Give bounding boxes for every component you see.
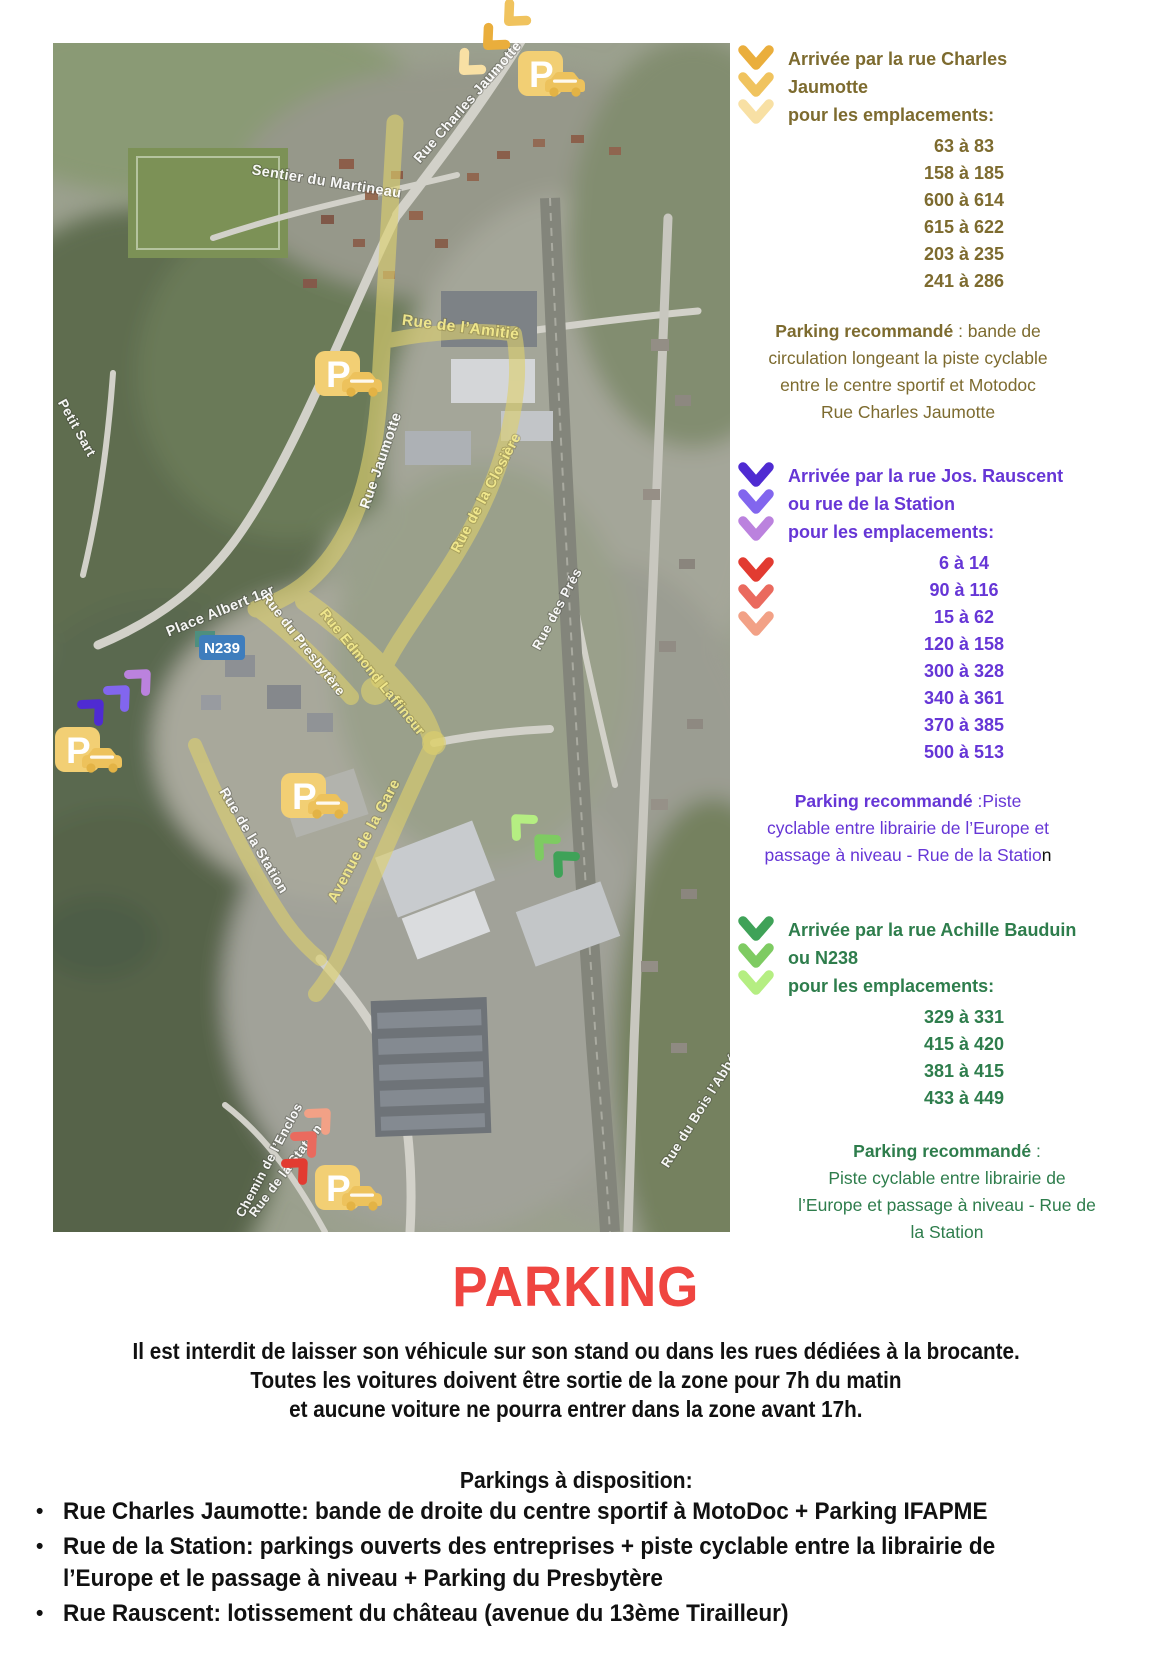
chevron-down-icon — [743, 975, 769, 990]
stand-range: 15 à 62 — [788, 604, 1140, 631]
chevron-down-icon — [743, 521, 769, 536]
route-block-rauscent-station: Arrivée par la rue Jos. Rauscent ou rue … — [736, 462, 1140, 766]
stand-range: 600 à 614 — [788, 187, 1140, 214]
parking-note-line: Rue Charles Jaumotte — [740, 399, 1076, 426]
stand-range: 158 à 185 — [788, 160, 1140, 187]
arrival-heading-line: pour les emplacements: — [788, 972, 1140, 1000]
parking-note-line: l’Europe et passage à niveau - Rue de — [782, 1192, 1112, 1219]
list-item: • Rue Rauscent: lotissement du château (… — [36, 1598, 1140, 1630]
stand-range: 381 à 415 — [788, 1058, 1140, 1085]
parking-note-label: Parking recommandé — [853, 1141, 1031, 1161]
parking-note-line: entre le centre sportif et Motodoc — [740, 372, 1076, 399]
chevron-down-icon — [743, 616, 769, 631]
arrival-heading-line: Arrivée par la rue Jos. Rauscent — [788, 462, 1140, 490]
stand-ranges: 329 à 331 415 à 420 381 à 415 433 à 449 — [788, 1004, 1140, 1112]
stand-range: 615 à 622 — [788, 214, 1140, 241]
chevron-down-icon — [743, 467, 769, 482]
stand-range: 203 à 235 — [788, 241, 1140, 268]
black-letter: n — [1042, 845, 1052, 865]
list-item-line: l’Europe et le passage à niveau + Parkin… — [63, 1563, 1055, 1595]
arrival-heading-line: Arrivée par la rue Charles — [788, 45, 1140, 73]
route-block-text: Arrivée par la rue Charles Jaumotte pour… — [788, 45, 1140, 295]
parking-note-label: Parking recommandé — [775, 321, 953, 341]
chevron-down-icon — [743, 589, 769, 604]
chevron-stack — [736, 45, 788, 295]
page-title: PARKING — [0, 1259, 1152, 1316]
chevron-stack — [736, 462, 788, 766]
route-block-text: Arrivée par la rue Achille Bauduin ou N2… — [788, 916, 1140, 1112]
aerial-map: P — [53, 43, 730, 1232]
chevron-down-icon — [743, 50, 769, 65]
arrival-heading-line: ou rue de la Station — [788, 490, 1140, 518]
chevron-stack — [736, 916, 788, 1112]
svg-text:N239: N239 — [204, 640, 240, 657]
chevron-down-icon — [743, 104, 769, 119]
parking-note-line: Piste cyclable entre librairie de — [782, 1165, 1112, 1192]
bullet-icon: • — [36, 1496, 63, 1528]
rules-text: Il est interdit de laisser son véhicule … — [0, 1337, 1152, 1424]
parkings-subtitle: Parkings à disposition: — [0, 1467, 1152, 1494]
parking-note-yellow: Parking recommandé : bande de circulatio… — [740, 318, 1076, 426]
arrival-heading-line: pour les emplacements: — [788, 101, 1140, 129]
parking-note-green: Parking recommandé : Piste cyclable entr… — [782, 1138, 1112, 1246]
stand-ranges: 63 à 83 158 à 185 600 à 614 615 à 622 20… — [788, 133, 1140, 295]
rules-line: Il est interdit de laisser son véhicule … — [0, 1337, 1152, 1366]
road-sign-n239: N239 — [195, 631, 245, 660]
arrival-heading-line: Arrivée par la rue Achille Bauduin — [788, 916, 1140, 944]
list-item-line: Rue Charles Jaumotte: bande de droite du… — [63, 1496, 1047, 1528]
chevron-icon — [500, 4, 526, 30]
list-item-line: Rue de la Station: parkings ouverts des … — [63, 1531, 1055, 1563]
stand-range: 63 à 83 — [788, 133, 1140, 160]
stand-range: 415 à 420 — [788, 1031, 1140, 1058]
stand-range: 300 à 328 — [788, 658, 1140, 685]
stand-range: 120 à 158 — [788, 631, 1140, 658]
parking-note-line: Parking recommandé :Piste — [740, 788, 1076, 815]
parking-note-line: passage à niveau - Rue de la Station — [740, 842, 1076, 869]
chevron-down-icon — [743, 494, 769, 509]
top-entry-chevrons — [420, 0, 560, 100]
parking-note-line: Parking recommandé : — [782, 1138, 1112, 1165]
chevron-down-icon — [743, 562, 769, 577]
list-item: • Rue Charles Jaumotte: bande de droite … — [36, 1496, 1140, 1528]
list-item-line: Rue Rauscent: lotissement du château (av… — [63, 1598, 835, 1630]
chevron-down-icon — [743, 77, 769, 92]
bullet-icon: • — [36, 1531, 63, 1595]
stand-range: 329 à 331 — [788, 1004, 1140, 1031]
stand-range: 6 à 14 — [788, 550, 1140, 577]
route-block-bauduin-n238: Arrivée par la rue Achille Bauduin ou N2… — [736, 916, 1140, 1112]
bullet-icon: • — [36, 1598, 63, 1630]
arrival-heading-line: Jaumotte — [788, 73, 1140, 101]
stand-range: 500 à 513 — [788, 739, 1140, 766]
stand-ranges: 6 à 14 90 à 116 15 à 62 120 à 158 300 à … — [788, 550, 1140, 766]
stand-range: 241 à 286 — [788, 268, 1140, 295]
parking-note-line: Parking recommandé : bande de — [740, 318, 1076, 345]
stand-range: 340 à 361 — [788, 685, 1140, 712]
parking-note-line: cyclable entre librairie de l’Europe et — [740, 815, 1076, 842]
parking-flyer-page: { "palette": { "olive": "#7d6b2f", "purp… — [0, 0, 1152, 1674]
parking-note-line: circulation longeant la piste cyclable — [740, 345, 1076, 372]
chevron-down-icon — [743, 948, 769, 963]
parkings-list: • Rue Charles Jaumotte: bande de droite … — [36, 1496, 1140, 1633]
chevron-icon — [455, 53, 481, 79]
chevron-icon — [479, 28, 505, 54]
stand-range: 433 à 449 — [788, 1085, 1140, 1112]
arrival-heading-line: pour les emplacements: — [788, 518, 1140, 546]
parking-note-label: Parking recommandé — [795, 791, 973, 811]
rules-line: et aucune voiture ne pourra entrer dans … — [0, 1395, 1152, 1424]
list-item: • Rue de la Station: parkings ouverts de… — [36, 1531, 1140, 1595]
rules-line: Toutes les voitures doivent être sortie … — [0, 1366, 1152, 1395]
route-block-charles-jaumotte: Arrivée par la rue Charles Jaumotte pour… — [736, 45, 1140, 295]
stand-range: 90 à 116 — [788, 577, 1140, 604]
chevron-down-icon — [743, 921, 769, 936]
stand-range: 370 à 385 — [788, 712, 1140, 739]
arrival-heading-line: ou N238 — [788, 944, 1140, 972]
parking-note-line: la Station — [782, 1219, 1112, 1246]
parking-note-purple: Parking recommandé :Piste cyclable entre… — [740, 788, 1076, 869]
route-block-text: Arrivée par la rue Jos. Rauscent ou rue … — [788, 462, 1140, 766]
